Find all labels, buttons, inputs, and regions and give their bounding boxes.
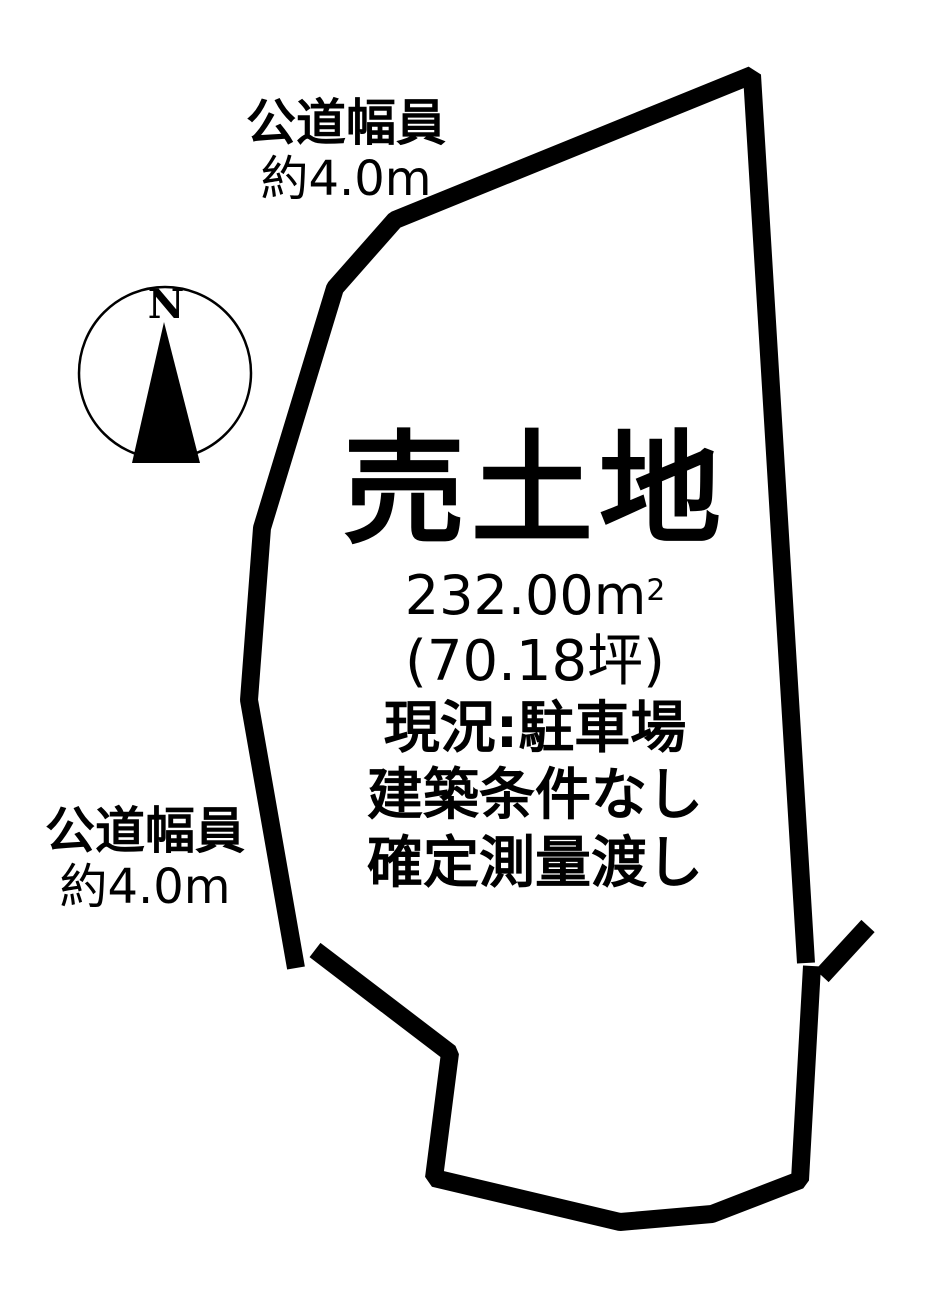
road-width-label-left: 公道幅員 約4.0m [45, 804, 245, 911]
area-square-meters: 232.00m2 [343, 563, 727, 629]
road-width-left-line2: 約4.0m [45, 863, 245, 911]
area-tsubo: (70.18坪) [343, 629, 727, 695]
road-width-top-line2: 約4.0m [246, 155, 446, 203]
compass-needle-icon [132, 322, 200, 463]
road-width-top-line1: 公道幅員 [246, 96, 446, 150]
plot-boundary-spur [822, 926, 868, 976]
road-width-label-top: 公道幅員 約4.0m [246, 96, 446, 203]
area-unit: m [594, 564, 647, 627]
survey-delivery: 確定測量渡し [343, 830, 727, 897]
compass-north-label: N [148, 281, 185, 328]
land-plot-diagram: N 公道幅員 約4.0m 公道幅員 約4.0m 売土地 232.00m2 (70… [0, 0, 926, 1292]
property-info-block: 売土地 232.00m2 (70.18坪) 現況:駐車場 建築条件なし 確定測量… [343, 426, 727, 897]
area-unit-exponent: 2 [646, 573, 665, 608]
property-title: 売土地 [343, 426, 727, 555]
plot-boundary-bottom [315, 950, 812, 1222]
building-condition: 建築条件なし [343, 762, 727, 829]
compass: N [79, 281, 251, 463]
area-value: 232.00 [405, 564, 594, 627]
road-width-left-line1: 公道幅員 [45, 804, 245, 858]
current-status: 現況:駐車場 [343, 695, 727, 762]
